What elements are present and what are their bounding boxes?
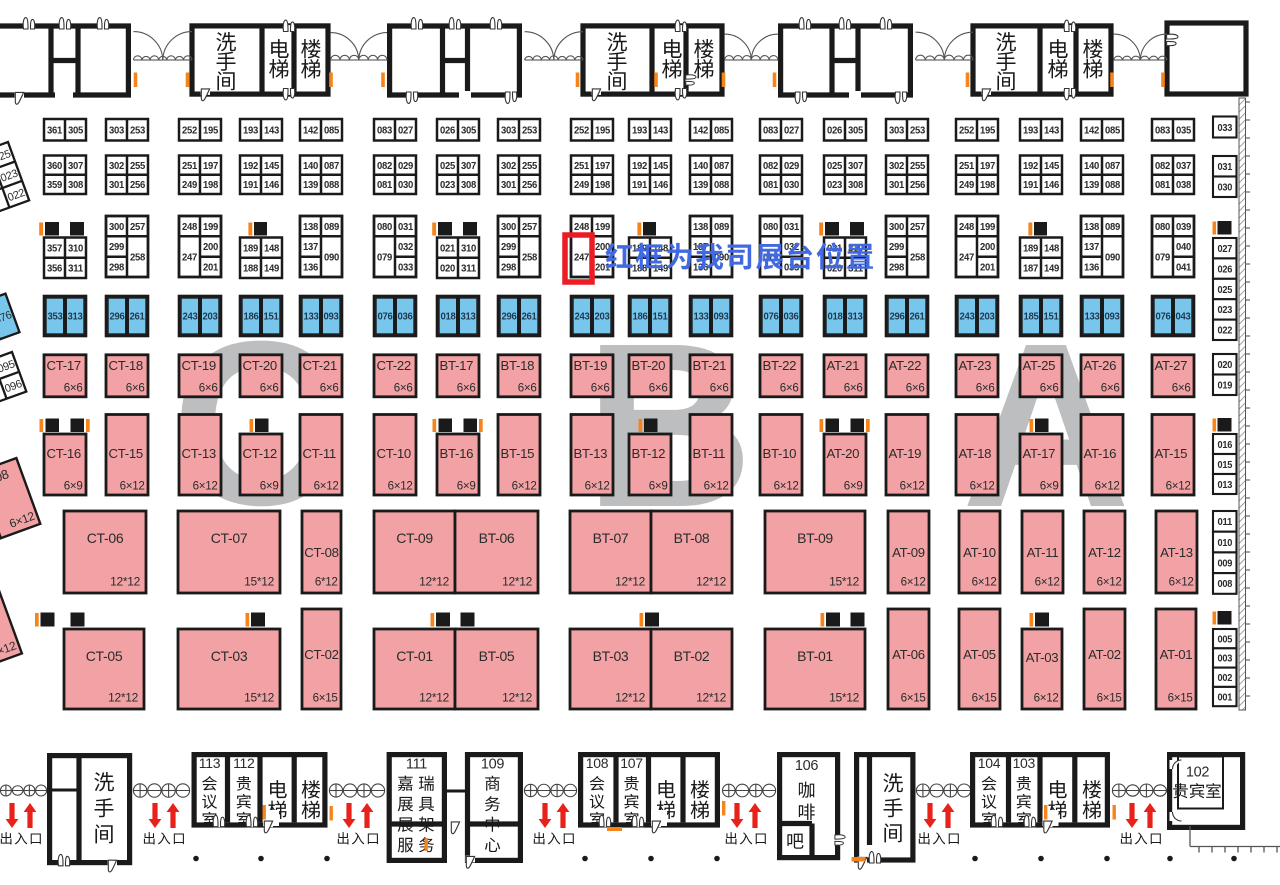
svg-text:6×12: 6×12 [120,480,145,493]
svg-text:302: 302 [501,161,517,172]
svg-text:080: 080 [377,222,393,233]
svg-text:296: 296 [890,312,906,323]
svg-text:139: 139 [1084,180,1100,191]
svg-text:AT-13: AT-13 [1160,545,1193,560]
svg-text:102: 102 [1186,765,1210,781]
svg-text:308: 308 [848,180,864,191]
svg-text:192: 192 [243,161,259,172]
svg-text:025: 025 [1218,285,1233,296]
svg-text:085: 085 [324,125,340,136]
svg-text:BT-10: BT-10 [763,446,797,461]
svg-text:200: 200 [980,242,996,253]
svg-text:CT-05: CT-05 [86,648,123,664]
svg-text:203: 203 [980,312,996,323]
svg-text:133: 133 [1085,312,1101,323]
svg-text:090: 090 [1105,252,1121,263]
svg-text:249: 249 [959,180,975,191]
svg-text:005: 005 [1218,634,1233,645]
svg-text:AT-15: AT-15 [1155,446,1188,461]
svg-text:146: 146 [1044,180,1060,191]
svg-text:197: 197 [595,161,611,172]
svg-text:199: 199 [595,222,611,233]
svg-text:6×12: 6×12 [512,480,537,493]
svg-text:CT-03: CT-03 [211,648,248,664]
svg-text:6×12: 6×12 [900,480,925,493]
svg-text:041: 041 [1176,263,1192,274]
svg-text:080: 080 [763,222,779,233]
svg-text:037: 037 [1176,161,1192,172]
svg-text:081: 081 [763,180,779,191]
svg-text:CT-07: CT-07 [211,530,248,546]
svg-text:6×6: 6×6 [199,382,218,395]
svg-text:143: 143 [1044,125,1060,136]
svg-text:CT-18: CT-18 [109,358,143,373]
svg-text:AT-01: AT-01 [1160,647,1193,662]
svg-text:BT-07: BT-07 [593,530,629,546]
svg-text:087: 087 [1105,161,1121,172]
svg-text:016: 016 [1218,440,1233,451]
svg-text:12*12: 12*12 [502,691,532,705]
svg-text:BT-03: BT-03 [593,648,629,664]
svg-text:248: 248 [574,222,590,233]
svg-text:191: 191 [1023,180,1039,191]
svg-text:082: 082 [1155,161,1171,172]
svg-text:AT-18: AT-18 [959,446,992,461]
svg-text:6×6: 6×6 [591,382,610,395]
svg-text:256: 256 [522,180,538,191]
svg-text:133: 133 [304,312,320,323]
svg-text:BT-20: BT-20 [632,358,666,373]
svg-text:308: 308 [68,180,84,191]
svg-text:136: 136 [303,263,319,274]
svg-text:080: 080 [1155,222,1171,233]
svg-text:BT-06: BT-06 [479,530,515,546]
svg-text:195: 195 [203,125,219,136]
svg-text:BT-11: BT-11 [693,446,726,461]
svg-text:AT-19: AT-19 [889,446,922,461]
svg-text:251: 251 [182,161,198,172]
svg-text:249: 249 [182,180,198,191]
svg-text:252: 252 [959,125,975,136]
svg-text:038: 038 [1176,180,1192,191]
svg-text:008: 008 [1218,579,1233,590]
svg-text:BT-16: BT-16 [440,446,474,461]
svg-text:303: 303 [109,125,125,136]
svg-text:201: 201 [203,263,219,274]
svg-text:076: 076 [764,312,780,323]
svg-text:298: 298 [889,263,905,274]
svg-text:010: 010 [1218,538,1233,549]
svg-text:6×9: 6×9 [844,480,863,493]
svg-text:296: 296 [502,312,518,323]
svg-text:025: 025 [440,161,456,172]
svg-text:151: 151 [653,312,669,323]
svg-text:258: 258 [522,252,538,263]
svg-text:6×9: 6×9 [457,480,476,493]
svg-text:258: 258 [130,252,146,263]
svg-text:BT-13: BT-13 [574,446,608,461]
svg-text:186: 186 [244,312,260,323]
svg-text:198: 198 [595,180,611,191]
svg-text:243: 243 [960,312,976,323]
svg-text:303: 303 [501,125,517,136]
svg-text:CT-15: CT-15 [109,446,143,461]
svg-text:AT-22: AT-22 [889,358,922,373]
svg-text:6×6: 6×6 [457,382,476,395]
svg-text:6×12: 6×12 [388,480,413,493]
svg-text:029: 029 [784,161,800,172]
svg-text:199: 199 [203,222,219,233]
svg-text:085: 085 [1105,125,1121,136]
svg-text:CT-16: CT-16 [47,446,81,461]
svg-text:BT-01: BT-01 [797,648,833,664]
svg-text:140: 140 [1084,161,1100,172]
svg-text:BT-08: BT-08 [674,530,710,546]
svg-text:111: 111 [406,757,427,773]
svg-text:6×15: 6×15 [313,692,338,705]
svg-text:6*12: 6*12 [315,576,338,589]
svg-text:109: 109 [481,757,505,773]
svg-text:BT-19: BT-19 [574,358,608,373]
svg-text:138: 138 [693,222,709,233]
svg-text:035: 035 [1176,125,1192,136]
svg-text:6×15: 6×15 [1097,692,1122,705]
svg-text:303: 303 [889,125,905,136]
svg-text:243: 243 [575,312,591,323]
svg-text:6×9: 6×9 [1040,480,1059,493]
svg-text:257: 257 [910,222,926,233]
svg-text:247: 247 [182,252,198,263]
svg-text:193: 193 [632,125,648,136]
svg-text:307: 307 [461,161,477,172]
svg-text:AT-25: AT-25 [1023,358,1056,373]
svg-text:6×12: 6×12 [970,480,995,493]
svg-text:353: 353 [48,312,64,323]
svg-text:299: 299 [109,242,125,253]
svg-text:083: 083 [1155,125,1171,136]
svg-text:15*12: 15*12 [244,575,274,589]
svg-text:302: 302 [889,161,905,172]
svg-text:018: 018 [441,312,457,323]
svg-text:AT-05: AT-05 [963,647,996,662]
svg-text:255: 255 [910,161,926,172]
svg-text:12*12: 12*12 [419,691,449,705]
svg-text:248: 248 [182,222,198,233]
svg-text:149: 149 [264,264,280,275]
svg-text:149: 149 [1044,264,1060,275]
svg-text:197: 197 [203,161,219,172]
svg-text:137: 137 [1084,242,1100,253]
svg-text:6×6: 6×6 [976,382,995,395]
svg-text:145: 145 [653,161,669,172]
svg-text:BT-21: BT-21 [693,358,727,373]
svg-text:247: 247 [959,252,975,263]
svg-text:CT-02: CT-02 [304,647,338,662]
svg-text:6×12: 6×12 [1097,576,1122,589]
svg-text:253: 253 [130,125,146,136]
svg-text:027: 027 [398,125,414,136]
svg-text:026: 026 [1218,264,1233,275]
svg-text:12*12: 12*12 [108,691,138,705]
svg-text:139: 139 [303,180,319,191]
svg-text:310: 310 [461,243,477,254]
svg-text:083: 083 [763,125,779,136]
svg-text:133: 133 [694,312,710,323]
svg-text:195: 195 [595,125,611,136]
svg-text:079: 079 [377,252,393,263]
svg-text:356: 356 [47,264,63,275]
svg-text:257: 257 [130,222,146,233]
svg-text:300: 300 [889,222,905,233]
svg-text:310: 310 [68,243,84,254]
svg-text:CT-09: CT-09 [396,530,433,546]
svg-text:151: 151 [264,312,280,323]
svg-text:023: 023 [1218,305,1233,316]
svg-text:255: 255 [130,161,146,172]
svg-text:087: 087 [714,161,730,172]
svg-text:199: 199 [980,222,996,233]
svg-text:036: 036 [398,312,414,323]
svg-text:6×6: 6×6 [710,382,729,395]
svg-text:145: 145 [1044,161,1060,172]
svg-text:301: 301 [889,180,905,191]
svg-text:6×6: 6×6 [1040,382,1059,395]
svg-text:200: 200 [203,242,219,253]
svg-text:359: 359 [47,180,63,191]
svg-text:020: 020 [1218,360,1233,371]
svg-text:031: 031 [1218,162,1233,173]
svg-text:15*12: 15*12 [244,691,274,705]
svg-text:189: 189 [243,243,259,254]
svg-text:BT-12: BT-12 [632,446,666,461]
svg-text:248: 248 [959,222,975,233]
svg-text:6×6: 6×6 [64,382,83,395]
svg-text:026: 026 [827,125,843,136]
svg-text:12*12: 12*12 [110,575,140,589]
svg-text:AT-23: AT-23 [959,358,992,373]
svg-text:247: 247 [574,252,590,263]
svg-text:040: 040 [1176,242,1192,253]
svg-text:104: 104 [978,755,1001,771]
svg-text:6×15: 6×15 [972,692,997,705]
svg-text:6×9: 6×9 [64,480,83,493]
svg-text:12*12: 12*12 [696,575,726,589]
svg-text:142: 142 [1084,125,1100,136]
svg-text:198: 198 [980,180,996,191]
svg-text:187: 187 [1023,264,1039,275]
svg-text:089: 089 [1105,222,1121,233]
svg-text:001: 001 [1218,692,1233,703]
svg-text:313: 313 [68,312,84,323]
svg-text:6×12: 6×12 [1169,576,1194,589]
svg-text:6×9: 6×9 [260,480,279,493]
svg-text:108: 108 [586,755,609,771]
svg-text:305: 305 [848,125,864,136]
svg-text:142: 142 [303,125,319,136]
svg-text:090: 090 [324,252,340,263]
svg-text:252: 252 [182,125,198,136]
svg-text:255: 255 [522,161,538,172]
svg-text:6×12: 6×12 [1166,480,1191,493]
svg-text:112: 112 [233,755,255,771]
svg-text:256: 256 [130,180,146,191]
svg-text:6×12: 6×12 [585,480,610,493]
svg-text:189: 189 [1023,243,1039,254]
svg-text:BT-15: BT-15 [501,446,535,461]
svg-text:6×12: 6×12 [901,576,926,589]
svg-text:CT-19: CT-19 [182,358,216,373]
svg-text:138: 138 [303,222,319,233]
svg-text:022: 022 [1218,326,1233,337]
svg-text:301: 301 [501,180,517,191]
svg-text:186: 186 [633,312,649,323]
svg-text:140: 140 [693,161,709,172]
svg-text:298: 298 [501,263,517,274]
svg-text:088: 088 [714,180,730,191]
svg-text:026: 026 [440,125,456,136]
svg-text:201: 201 [595,263,611,274]
svg-text:BT-17: BT-17 [440,358,474,373]
svg-text:076: 076 [378,312,394,323]
svg-text:AT-16: AT-16 [1084,446,1117,461]
svg-text:6×6: 6×6 [906,382,925,395]
svg-text:036: 036 [784,312,800,323]
svg-text:083: 083 [377,125,393,136]
svg-text:6×12: 6×12 [704,480,729,493]
svg-text:311: 311 [461,264,477,275]
svg-text:6×12: 6×12 [774,480,799,493]
svg-text:261: 261 [130,312,146,323]
svg-text:256: 256 [910,180,926,191]
svg-text:143: 143 [264,125,280,136]
svg-text:BT-09: BT-09 [797,530,833,546]
svg-text:139: 139 [693,180,709,191]
svg-text:261: 261 [910,312,926,323]
svg-text:198: 198 [203,180,219,191]
svg-text:185: 185 [1024,312,1040,323]
svg-text:027: 027 [784,125,800,136]
svg-text:093: 093 [1105,312,1121,323]
svg-text:BT-02: BT-02 [674,648,710,664]
svg-text:CT-13: CT-13 [182,446,216,461]
svg-text:AT-21: AT-21 [827,358,860,373]
svg-text:252: 252 [574,125,590,136]
svg-text:027: 027 [1218,244,1233,255]
svg-text:CT-12: CT-12 [243,446,277,461]
svg-text:12*12: 12*12 [502,575,532,589]
svg-text:137: 137 [303,242,319,253]
svg-text:146: 146 [653,180,669,191]
svg-text:031: 031 [784,222,800,233]
svg-text:019: 019 [1218,381,1233,392]
svg-text:030: 030 [784,180,800,191]
svg-text:253: 253 [522,125,538,136]
svg-text:6×6: 6×6 [844,382,863,395]
svg-text:6×12: 6×12 [1095,480,1120,493]
svg-text:138: 138 [1084,222,1100,233]
svg-text:360: 360 [47,161,63,172]
svg-text:300: 300 [501,222,517,233]
svg-text:CT-22: CT-22 [377,358,411,373]
svg-text:AT-26: AT-26 [1084,358,1117,373]
svg-text:093: 093 [714,312,730,323]
svg-text:BT-05: BT-05 [479,648,515,664]
svg-text:253: 253 [910,125,926,136]
svg-text:6×12: 6×12 [193,480,218,493]
svg-text:298: 298 [109,263,125,274]
svg-text:CT-06: CT-06 [87,530,124,546]
svg-text:12*12: 12*12 [615,691,645,705]
svg-text:6×6: 6×6 [1101,382,1120,395]
svg-text:CT-21: CT-21 [303,358,337,373]
svg-text:313: 313 [848,312,864,323]
svg-text:243: 243 [183,312,199,323]
svg-text:088: 088 [1105,180,1121,191]
svg-text:CT-01: CT-01 [396,648,433,664]
svg-text:039: 039 [1176,222,1192,233]
svg-text:106: 106 [795,758,819,774]
svg-text:6×12: 6×12 [1035,576,1060,589]
svg-text:AT-03: AT-03 [1026,650,1059,665]
svg-text:6×15: 6×15 [901,692,926,705]
svg-text:148: 148 [264,243,280,254]
svg-text:305: 305 [68,125,84,136]
svg-text:299: 299 [889,242,905,253]
svg-text:15*12: 15*12 [829,575,859,589]
svg-text:12*12: 12*12 [696,691,726,705]
svg-text:CT-08: CT-08 [304,545,338,560]
svg-text:011: 011 [1218,517,1233,528]
svg-text:013: 013 [1218,480,1233,491]
svg-text:089: 089 [324,222,340,233]
svg-text:107: 107 [620,755,643,771]
svg-text:148: 148 [1044,243,1060,254]
svg-text:12*12: 12*12 [615,575,645,589]
svg-text:192: 192 [632,161,648,172]
svg-text:002: 002 [1218,673,1233,684]
svg-text:145: 145 [264,161,280,172]
svg-text:142: 142 [693,125,709,136]
svg-text:6×6: 6×6 [649,382,668,395]
svg-text:085: 085 [714,125,730,136]
svg-text:AT-17: AT-17 [1023,446,1056,461]
svg-text:299: 299 [501,242,517,253]
svg-text:088: 088 [324,180,340,191]
svg-text:251: 251 [959,161,975,172]
svg-text:15*12: 15*12 [829,691,859,705]
svg-text:033: 033 [398,263,414,274]
svg-text:AT-06: AT-06 [892,647,925,662]
svg-text:192: 192 [1023,161,1039,172]
svg-text:030: 030 [398,180,414,191]
svg-text:103: 103 [1013,755,1036,771]
svg-text:311: 311 [68,264,84,275]
svg-text:087: 087 [324,161,340,172]
svg-text:195: 195 [980,125,996,136]
svg-text:357: 357 [47,243,63,254]
svg-text:AT-27: AT-27 [1155,358,1188,373]
svg-text:249: 249 [574,180,590,191]
svg-text:6×12: 6×12 [314,480,339,493]
svg-text:136: 136 [1084,263,1100,274]
svg-text:361: 361 [47,125,63,136]
svg-text:6×6: 6×6 [1172,382,1191,395]
svg-text:193: 193 [243,125,259,136]
svg-text:AT-09: AT-09 [892,545,925,560]
svg-text:6×15: 6×15 [1168,692,1193,705]
svg-text:018: 018 [828,312,844,323]
svg-text:305: 305 [461,125,477,136]
